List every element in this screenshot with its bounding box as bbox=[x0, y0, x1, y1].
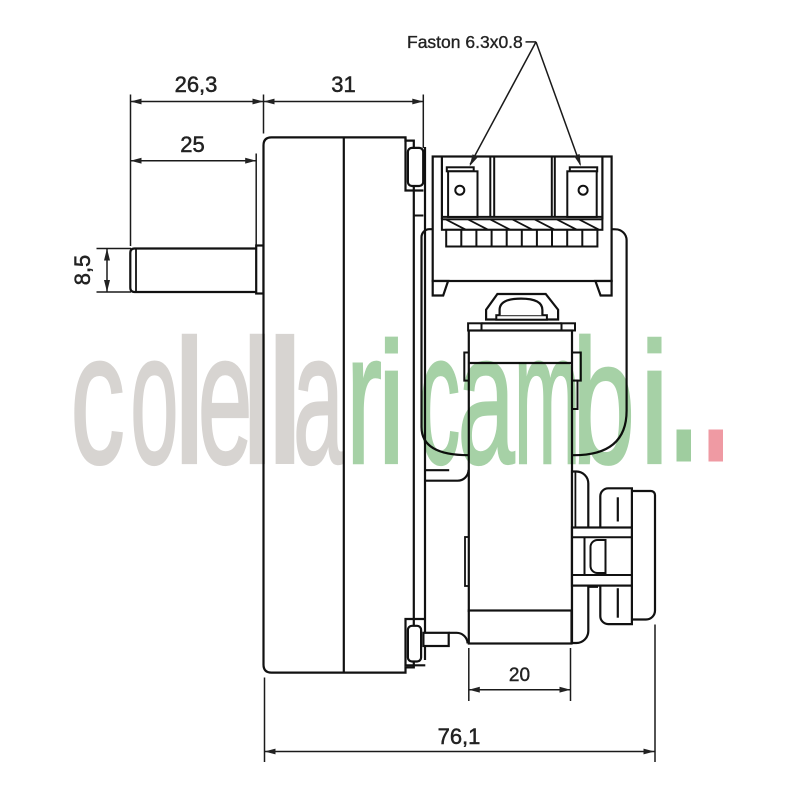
svg-text:a: a bbox=[458, 294, 516, 504]
svg-text:m: m bbox=[514, 292, 580, 503]
svg-text:20: 20 bbox=[509, 665, 530, 686]
svg-text:i: i bbox=[377, 308, 406, 501]
svg-text:31: 31 bbox=[331, 72, 355, 97]
svg-text:c: c bbox=[418, 292, 460, 503]
svg-text:b: b bbox=[572, 304, 635, 501]
svg-text:26,3: 26,3 bbox=[175, 72, 218, 97]
svg-text:25: 25 bbox=[180, 132, 204, 157]
svg-text:i: i bbox=[639, 307, 670, 500]
svg-text:o: o bbox=[130, 295, 178, 504]
svg-text:a: a bbox=[293, 294, 344, 504]
svg-text:8,5: 8,5 bbox=[70, 255, 95, 286]
svg-text:c: c bbox=[70, 293, 125, 503]
svg-text:Faston 6.3x0.8: Faston 6.3x0.8 bbox=[407, 32, 523, 52]
svg-text:76,1: 76,1 bbox=[438, 724, 481, 749]
